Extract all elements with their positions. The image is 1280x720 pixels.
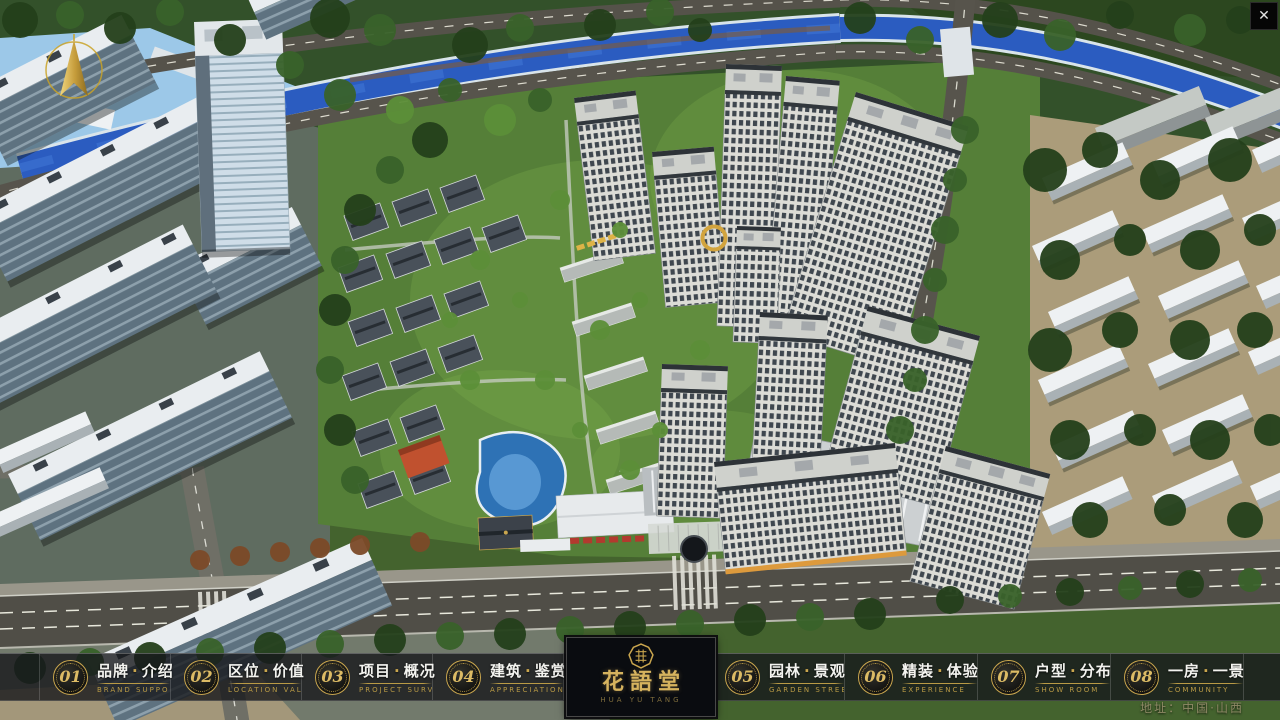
item-label-en: APPRECIATION xyxy=(490,686,563,694)
item-label-left: 区位 xyxy=(228,660,260,681)
label-dot: · xyxy=(937,662,944,680)
nav-item-brand[interactable]: 01 品牌·介绍 BRAND SUPPORT xyxy=(40,654,171,700)
item-label-right: 价值 xyxy=(273,660,305,681)
item-number-badge: 08 xyxy=(1124,660,1159,695)
item-label-zh: 园林·景观 xyxy=(769,660,844,681)
item-label-en: GARDEN STREET xyxy=(769,686,844,694)
item-label-left: 精装 xyxy=(902,660,934,681)
item-label-right: 景观 xyxy=(814,660,846,681)
item-label-zh: 户型·分布 xyxy=(1035,660,1110,681)
item-label-en: PROJECT SURVEY xyxy=(359,686,432,694)
item-number: 06 xyxy=(864,667,886,686)
item-label-zh: 区位·价值 xyxy=(228,660,301,681)
item-label-en: SHOW ROOM xyxy=(1035,686,1110,694)
nav-item-floorplan[interactable]: 07 户型·分布 SHOW ROOM xyxy=(978,654,1111,700)
item-label-left: 建筑 xyxy=(490,660,522,681)
item-number-badge: 05 xyxy=(725,660,760,695)
tower-gold-trim xyxy=(714,443,907,574)
item-text: 建筑·鉴赏 APPRECIATION xyxy=(490,660,563,694)
item-number: 08 xyxy=(1130,667,1152,686)
item-number-badge: 03 xyxy=(315,660,350,695)
site-plan-render[interactable] xyxy=(0,0,1280,720)
item-label-zh: 品牌·介绍 xyxy=(97,660,170,681)
entrance-plaza xyxy=(681,536,707,562)
nav-item-location[interactable]: 02 区位·价值 LOCATION VALUE xyxy=(171,654,302,700)
gold-rule xyxy=(1168,683,1243,684)
item-label-right: 一景 xyxy=(1213,660,1245,681)
label-dot: · xyxy=(263,662,270,680)
item-number-badge: 07 xyxy=(991,660,1026,695)
label-dot: · xyxy=(1203,662,1210,680)
item-text: 区位·价值 LOCATION VALUE xyxy=(228,660,301,694)
item-number: 01 xyxy=(59,667,81,686)
seal-icon xyxy=(628,643,654,669)
nav-item-experience[interactable]: 06 精装·体验 EXPERIENCE xyxy=(845,654,978,700)
label-dot: · xyxy=(132,662,139,680)
swimming-pool xyxy=(477,432,566,525)
item-label-left: 户型 xyxy=(1035,660,1067,681)
presentation-stage: ✕ 01 品牌·介绍 BRAND SUPPORT 02 区位·价值 LOCATI… xyxy=(0,0,1280,720)
gold-rule xyxy=(902,683,977,684)
item-text: 一房·一景 COMMUNITY xyxy=(1168,660,1243,694)
item-label-right: 分布 xyxy=(1080,660,1112,681)
item-number-badge: 01 xyxy=(53,660,88,695)
label-dot: · xyxy=(394,662,401,680)
gold-rule xyxy=(769,683,844,684)
close-button[interactable]: ✕ xyxy=(1250,2,1278,30)
label-dot: · xyxy=(1070,662,1077,680)
item-number: 05 xyxy=(731,667,753,686)
logo-panel[interactable]: 花語堂 HUA YU TANG xyxy=(566,637,716,717)
item-label-zh: 精装·体验 xyxy=(902,660,977,681)
item-label-right: 体验 xyxy=(947,660,979,681)
item-number: 03 xyxy=(321,667,343,686)
item-label-left: 一房 xyxy=(1168,660,1200,681)
item-text: 园林·景观 GARDEN STREET xyxy=(769,660,844,694)
item-label-left: 园林 xyxy=(769,660,801,681)
item-label-zh: 建筑·鉴赏 xyxy=(490,660,563,681)
item-text: 项目·概况 PROJECT SURVEY xyxy=(359,660,432,694)
project-logo-title: 花語堂 xyxy=(596,670,686,694)
project-logo-subtitle: HUA YU TANG xyxy=(600,696,681,704)
gold-rule xyxy=(228,683,301,684)
gold-rule xyxy=(490,683,563,684)
item-label-en: COMMUNITY xyxy=(1168,686,1243,694)
gold-rule xyxy=(1035,683,1110,684)
item-label-en: EXPERIENCE xyxy=(902,686,977,694)
item-number: 02 xyxy=(190,667,212,686)
navbar-spacer xyxy=(0,654,40,700)
item-label-en: LOCATION VALUE xyxy=(228,686,301,694)
compass-icon xyxy=(36,30,112,108)
gold-rule xyxy=(359,683,432,684)
nav-item-building[interactable]: 04 建筑·鉴赏 APPRECIATION xyxy=(433,654,564,700)
item-label-right: 介绍 xyxy=(142,660,174,681)
item-number-badge: 02 xyxy=(184,660,219,695)
item-number: 07 xyxy=(997,667,1019,686)
item-label-en: BRAND SUPPORT xyxy=(97,686,170,694)
navbar-spacer xyxy=(1244,654,1280,700)
nav-item-project[interactable]: 03 项目·概况 PROJECT SURVEY xyxy=(302,654,433,700)
item-number-badge: 04 xyxy=(446,660,481,695)
project-address: 地址：中国·山西 xyxy=(1140,699,1244,716)
item-label-zh: 一房·一景 xyxy=(1168,660,1243,681)
nav-item-garden[interactable]: 05 园林·景观 GARDEN STREET xyxy=(712,654,845,700)
gold-rule xyxy=(97,683,170,684)
item-text: 户型·分布 SHOW ROOM xyxy=(1035,660,1110,694)
item-label-right: 鉴赏 xyxy=(535,660,567,681)
item-number-badge: 06 xyxy=(858,660,893,695)
label-dot: · xyxy=(525,662,532,680)
nav-item-community[interactable]: 08 一房·一景 COMMUNITY xyxy=(1111,654,1244,700)
close-icon: ✕ xyxy=(1258,9,1270,23)
item-label-zh: 项目·概况 xyxy=(359,660,432,681)
item-label-left: 项目 xyxy=(359,660,391,681)
riverside-tower xyxy=(194,19,290,258)
item-label-left: 品牌 xyxy=(97,660,129,681)
item-number: 04 xyxy=(452,667,474,686)
item-text: 精装·体验 EXPERIENCE xyxy=(902,660,977,694)
item-text: 品牌·介绍 BRAND SUPPORT xyxy=(97,660,170,694)
item-label-right: 概况 xyxy=(404,660,436,681)
label-dot: · xyxy=(804,662,811,680)
